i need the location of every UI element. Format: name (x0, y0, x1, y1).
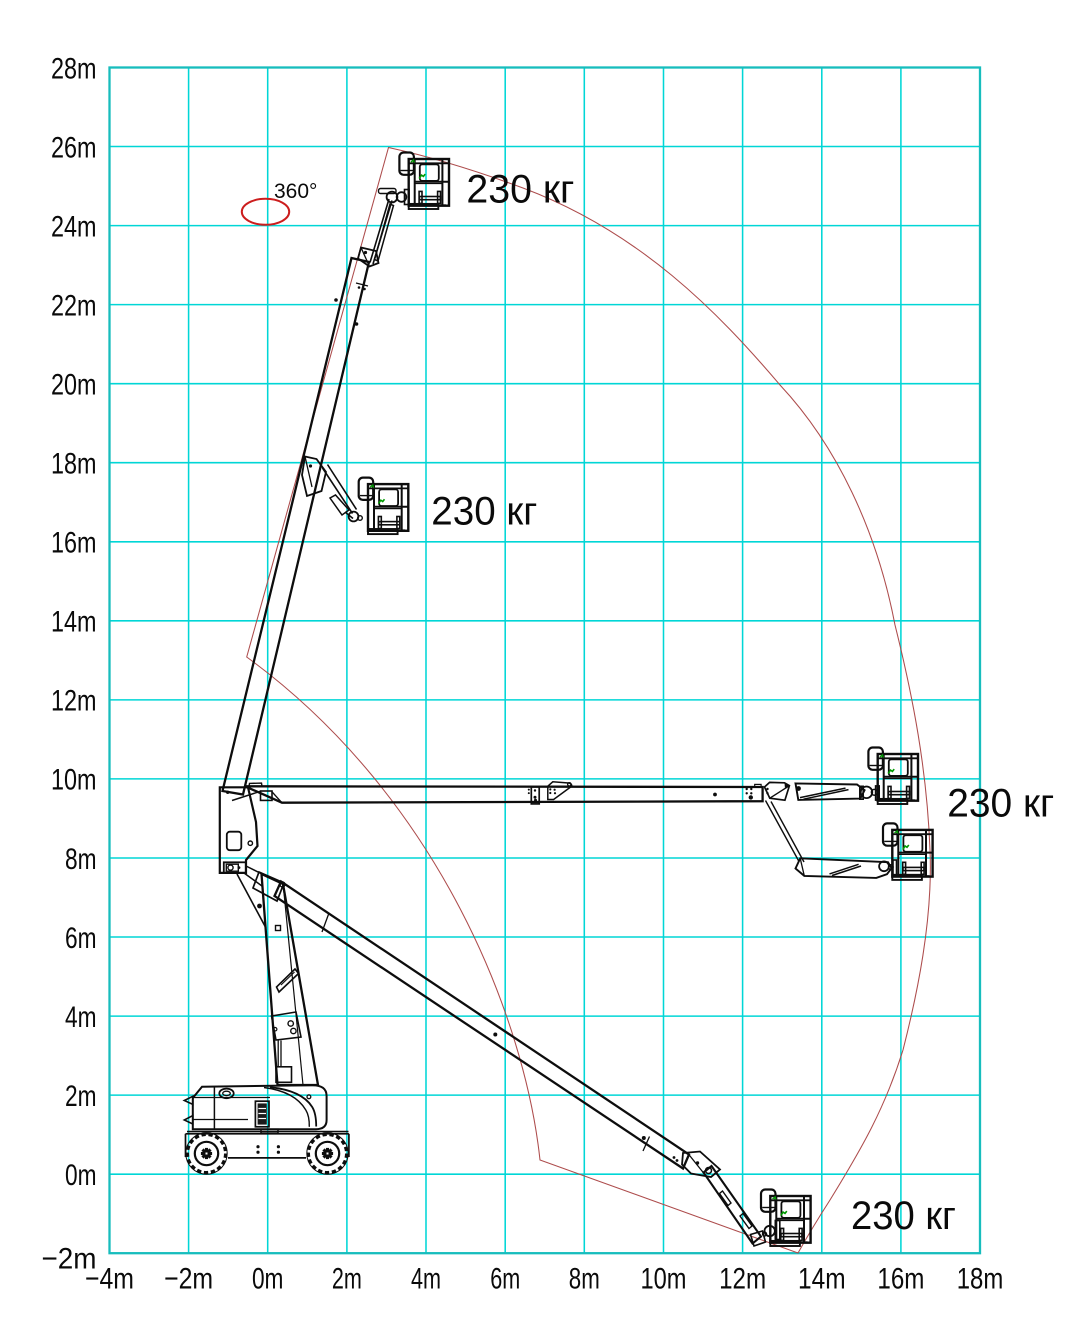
svg-text:6m: 6m (490, 1263, 520, 1296)
svg-text:4m: 4m (65, 1001, 97, 1034)
svg-text:24m: 24m (51, 210, 97, 243)
svg-text:10m: 10m (641, 1263, 687, 1296)
svg-text:2m: 2m (65, 1080, 97, 1113)
svg-text:20m: 20m (51, 369, 97, 402)
svg-text:0m: 0m (252, 1263, 284, 1296)
svg-text:22m: 22m (51, 289, 97, 322)
svg-text:12m: 12m (51, 685, 97, 718)
svg-text:230 кг: 230 кг (431, 490, 537, 534)
svg-text:360°: 360° (274, 180, 317, 203)
svg-text:8m: 8m (65, 843, 97, 876)
svg-text:230 кг: 230 кг (851, 1194, 956, 1238)
svg-text:2m: 2m (332, 1263, 362, 1296)
svg-text:18m: 18m (51, 448, 97, 481)
svg-text:10m: 10m (51, 764, 97, 797)
svg-text:18m: 18m (957, 1263, 1004, 1296)
svg-text:14m: 14m (798, 1263, 846, 1296)
svg-text:6m: 6m (65, 922, 97, 955)
svg-text:16m: 16m (877, 1263, 924, 1296)
svg-text:28m: 28m (51, 52, 97, 85)
svg-text:4m: 4m (411, 1263, 441, 1296)
svg-text:230 кг: 230 кг (466, 168, 574, 212)
svg-text:−4m: −4m (85, 1263, 134, 1296)
svg-text:8m: 8m (569, 1263, 600, 1296)
svg-text:26m: 26m (51, 131, 97, 164)
svg-text:16m: 16m (51, 527, 97, 560)
svg-text:230 кг: 230 кг (947, 782, 1054, 826)
svg-text:14m: 14m (51, 606, 97, 639)
svg-text:0m: 0m (65, 1159, 97, 1192)
svg-text:−2m: −2m (164, 1263, 213, 1296)
svg-text:12m: 12m (719, 1263, 766, 1296)
